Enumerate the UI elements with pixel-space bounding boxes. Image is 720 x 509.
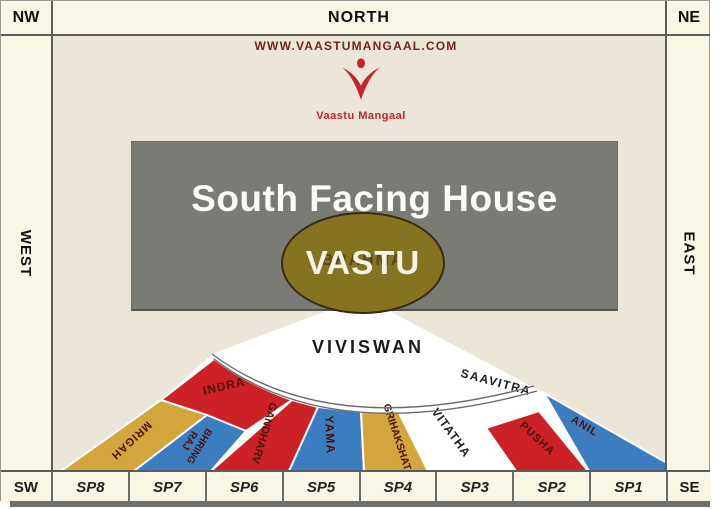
sp-cell-6: SP6 bbox=[207, 472, 284, 503]
compass-ne: NE bbox=[665, 1, 711, 34]
sp-cell-3: SP3 bbox=[437, 472, 514, 503]
sp-cell-8: SP8 bbox=[53, 472, 130, 503]
compass-east: EAST bbox=[681, 231, 698, 275]
diagram-frame: WWW.VAASTUMANGAAL.COM Vaastu Mangaal IND… bbox=[0, 0, 710, 501]
compass-east-column: EAST bbox=[665, 36, 711, 470]
compass-north: NORTH bbox=[53, 1, 665, 34]
segment-label-yama: YAMA bbox=[322, 415, 338, 454]
compass-sw: SW bbox=[1, 472, 53, 503]
drop-shadow bbox=[10, 501, 710, 507]
sp-cell-7: SP7 bbox=[130, 472, 207, 503]
compass-west: WEST bbox=[18, 229, 35, 276]
compass-row-bottom: SW SP8 SP7 SP6 SP5 SP4 SP3 SP2 SP1 SE bbox=[1, 470, 711, 503]
sp-cell-4: SP4 bbox=[361, 472, 438, 503]
sp-cell-2: SP2 bbox=[514, 472, 591, 503]
compass-se: SE bbox=[668, 472, 711, 503]
vastu-label: VASTU bbox=[306, 244, 420, 282]
vastu-diagram: WWW.VAASTUMANGAAL.COM Vaastu Mangaal IND… bbox=[0, 0, 720, 509]
center-oval: BRAHMA VASTU bbox=[281, 212, 445, 314]
compass-nw: NW bbox=[1, 1, 53, 34]
sp-cell-5: SP5 bbox=[284, 472, 361, 503]
page-edge-right bbox=[710, 0, 720, 509]
compass-west-column: WEST bbox=[1, 36, 53, 470]
viviswan-label: VIVISWAN bbox=[312, 337, 424, 357]
sp-cell-1: SP1 bbox=[591, 472, 668, 503]
compass-row-top: NW NORTH NE bbox=[1, 1, 711, 36]
